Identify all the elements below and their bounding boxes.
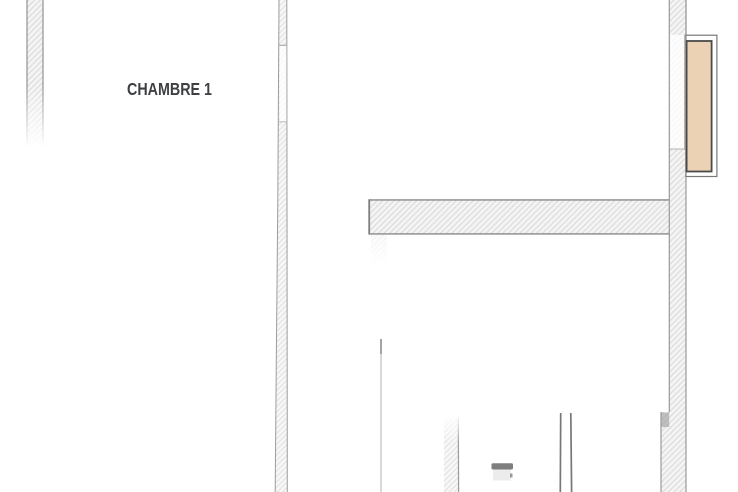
svg-text:CHAMBRE 1: CHAMBRE 1 <box>127 79 212 99</box>
